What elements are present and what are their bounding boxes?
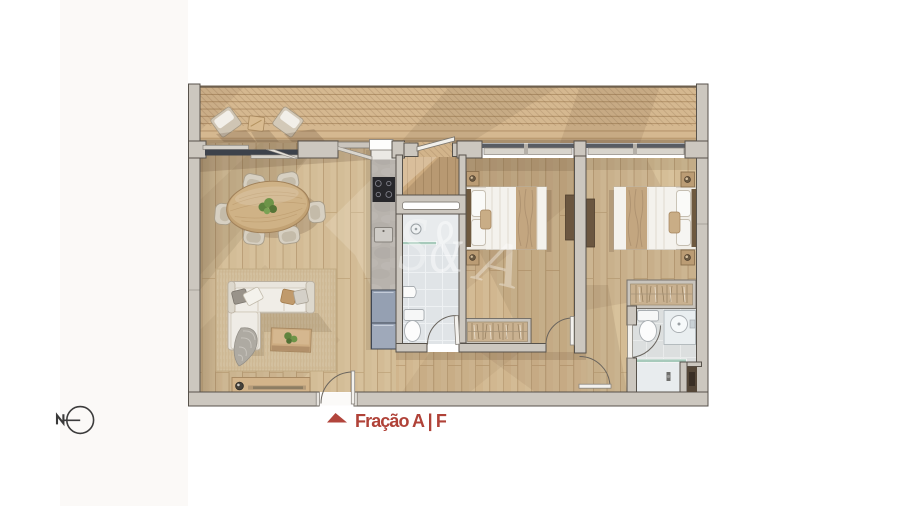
svg-text:&: & bbox=[429, 205, 463, 289]
svg-text:Fração A | F: Fração A | F bbox=[355, 411, 447, 431]
svg-text:S: S bbox=[398, 203, 428, 287]
